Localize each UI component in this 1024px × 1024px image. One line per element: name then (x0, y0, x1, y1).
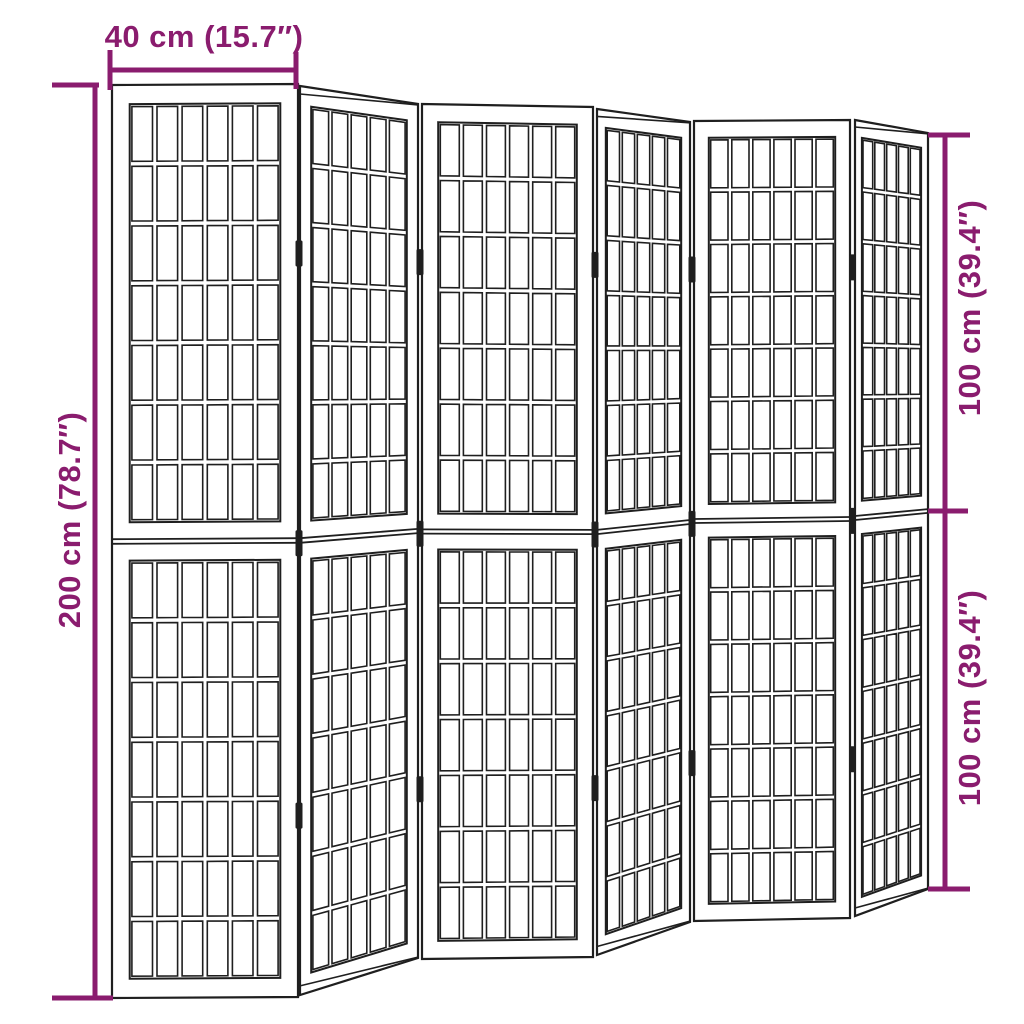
hinge-icon (849, 746, 856, 772)
hinge-icon (296, 241, 303, 267)
product-dimension-image: 40 cm (15.7″) 200 cm (78.7″) 100 cm (39.… (0, 0, 1024, 1024)
dim-right-bottom-label: 100 cm (39.4″) (952, 590, 987, 807)
panel-1 (112, 84, 298, 998)
dim-height-right-bottom: 100 cm (39.4″) (928, 511, 987, 889)
hinge-icon (592, 775, 599, 801)
panel-4 (597, 109, 690, 955)
dim-height-right-top: 100 cm (39.4″) (928, 135, 987, 511)
hinge-icon (417, 521, 424, 547)
panel-5 (694, 120, 850, 921)
hinge-icon (849, 254, 856, 280)
room-divider-dimension-diagram: 40 cm (15.7″) 200 cm (78.7″) 100 cm (39.… (0, 0, 1024, 1024)
panel-3 (422, 104, 593, 959)
dim-height-left: 200 cm (78.7″) (52, 85, 113, 998)
dim-right-top-label: 100 cm (39.4″) (952, 200, 987, 417)
panel-2 (300, 86, 418, 995)
hinge-icon (296, 803, 303, 829)
dim-left-label: 200 cm (78.7″) (52, 412, 87, 629)
hinge-icon (689, 257, 696, 283)
dim-top-label: 40 cm (15.7″) (105, 19, 304, 54)
hinge-icon (592, 252, 599, 278)
hinge-icon (849, 508, 856, 534)
divider-panels (112, 84, 928, 998)
hinge-icon (689, 511, 696, 537)
hinge-icon (689, 750, 696, 776)
panel-6 (855, 120, 928, 916)
hinge-icon (296, 530, 303, 556)
hinge-icon (417, 249, 424, 275)
hinge-icon (592, 522, 599, 548)
dim-width-top: 40 cm (15.7″) (105, 19, 304, 90)
hinge-icon (417, 776, 424, 802)
